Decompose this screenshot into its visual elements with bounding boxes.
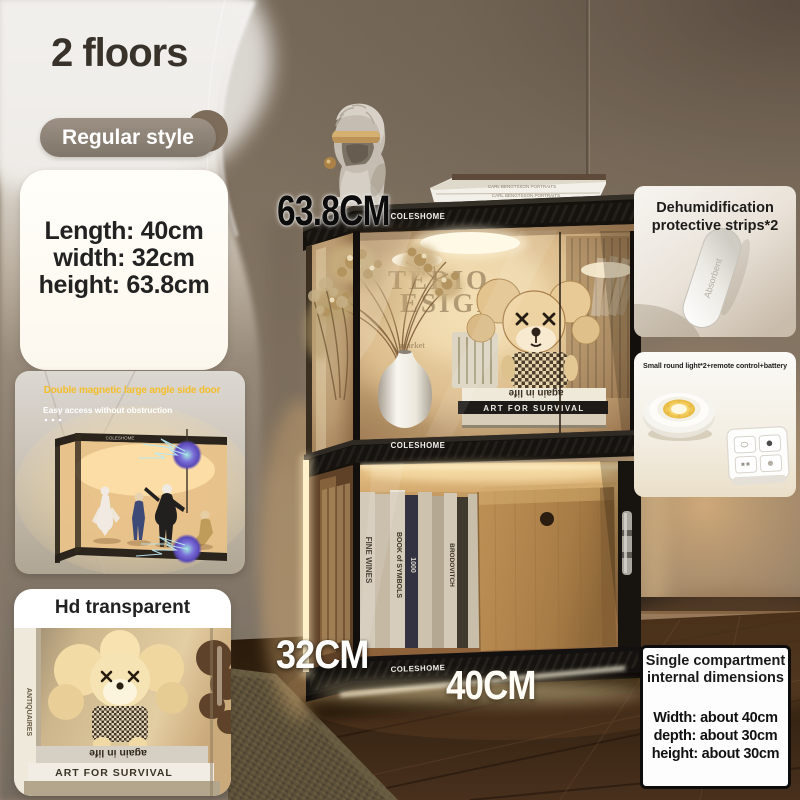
svg-text:COLESHOME: COLESHOME bbox=[391, 441, 446, 450]
svg-text:protective strips*2: protective strips*2 bbox=[652, 218, 779, 234]
svg-text:CARL BENGTSSON PORTRAITS: CARL BENGTSSON PORTRAITS bbox=[488, 184, 556, 189]
svg-text:Double magnetic large angle si: Double magnetic large angle side door bbox=[44, 385, 221, 396]
svg-text:ART FOR SURVIVAL: ART FOR SURVIVAL bbox=[55, 767, 173, 779]
svg-text:1000: 1000 bbox=[409, 557, 416, 573]
svg-text:Dehumidification: Dehumidification bbox=[656, 200, 774, 216]
svg-text:ART FOR SURVIVAL: ART FOR SURVIVAL bbox=[483, 404, 584, 413]
svg-text:BRODOVITCH: BRODOVITCH bbox=[448, 543, 455, 587]
svg-text:COLESHOME: COLESHOME bbox=[106, 436, 135, 441]
svg-text:ANTIQUAIRES: ANTIQUAIRES bbox=[25, 688, 32, 737]
svg-text:Small round light*2+remote con: Small round light*2+remote control+batte… bbox=[643, 361, 787, 370]
svg-text:CARL BENGTSSON PORTRAITS: CARL BENGTSSON PORTRAITS bbox=[492, 193, 560, 198]
svg-text:Easy access without obstructio: Easy access without obstruction bbox=[43, 405, 172, 415]
svg-text:COLESHOME: COLESHOME bbox=[391, 663, 446, 674]
svg-text:again in life: again in life bbox=[89, 747, 147, 759]
svg-text:BOOK of SYMBOLS: BOOK of SYMBOLS bbox=[395, 532, 402, 598]
svg-text:COLESHOME: COLESHOME bbox=[391, 212, 446, 221]
svg-text:again in life: again in life bbox=[508, 387, 563, 398]
